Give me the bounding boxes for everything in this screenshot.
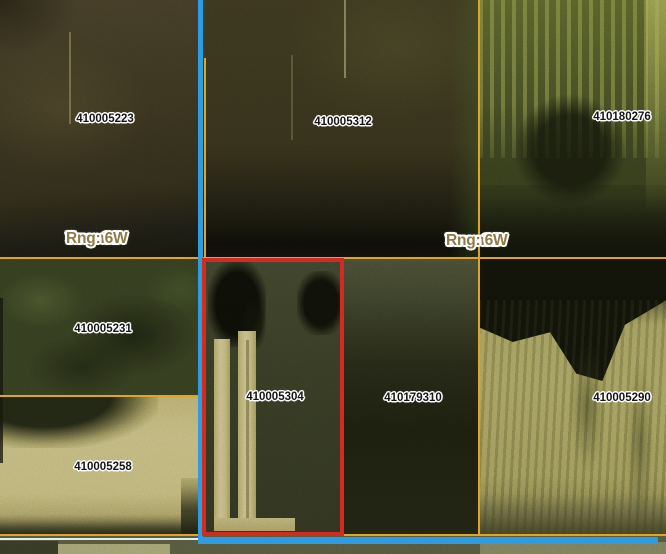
township-boundary-blue-horizontal bbox=[198, 537, 658, 544]
parcel-label[interactable]: 410005223 bbox=[76, 113, 134, 125]
parcel-label-selected[interactable]: 410005304 bbox=[246, 391, 304, 403]
range-number: Rng: 6W bbox=[446, 231, 507, 251]
parcel-boundary-line bbox=[0, 395, 203, 397]
parcel-label[interactable]: 410005312 bbox=[314, 116, 372, 128]
parcel-label[interactable]: 410005231 bbox=[74, 323, 132, 335]
parcel-boundary-line bbox=[478, 0, 480, 536]
road-centerline bbox=[0, 538, 203, 540]
parcel-map-canvas[interactable]: 410005223 410005312 410180276 410005231 … bbox=[0, 0, 666, 554]
parcel-boundary-line bbox=[204, 58, 206, 259]
parcel-label[interactable]: 410179310 bbox=[384, 392, 442, 404]
parcel-label[interactable]: 410005290 bbox=[593, 392, 651, 404]
range-number: Rng: 6W bbox=[66, 229, 127, 249]
parcel-label[interactable]: 410005258 bbox=[74, 461, 132, 473]
parcel-label[interactable]: 410180276 bbox=[593, 111, 651, 123]
